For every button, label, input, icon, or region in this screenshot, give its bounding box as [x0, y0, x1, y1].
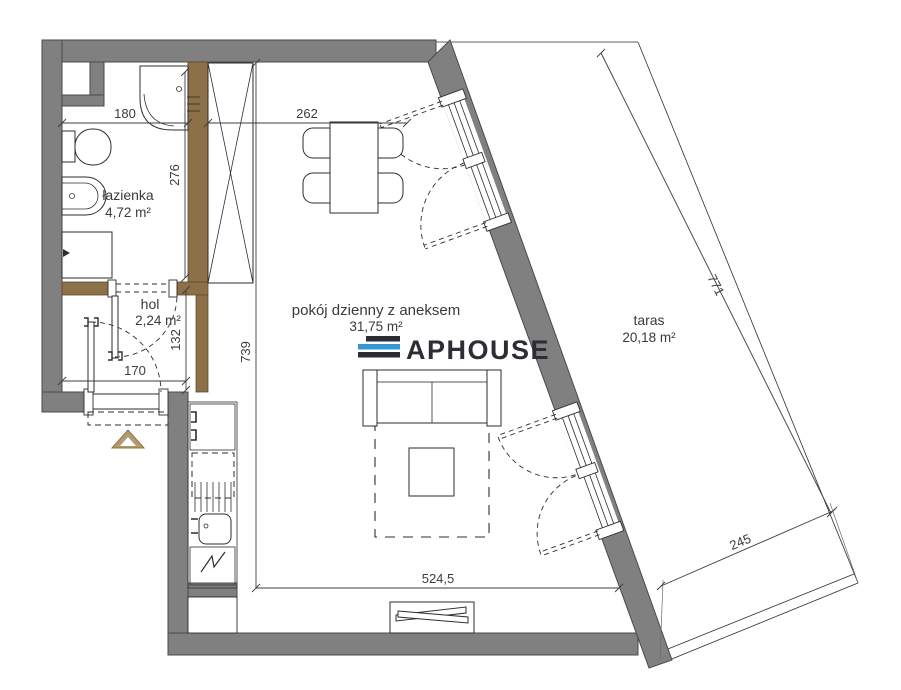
toilet-bowl — [75, 129, 111, 165]
cabinet-handle-icon — [191, 412, 196, 440]
room-area-hol: 2,24 m² — [135, 313, 181, 328]
door1-leaf-b — [425, 226, 487, 249]
entry-door-leaf — [88, 322, 94, 392]
room-area-bathroom: 4,72 m² — [105, 205, 151, 220]
hol-east-wall — [196, 295, 208, 392]
shaft-wall-horizontal — [62, 95, 104, 106]
bathroom-south-wall-right — [173, 282, 208, 295]
dim-245: 245 — [727, 531, 753, 553]
kitchen — [188, 402, 237, 588]
logo-text: APHOUSE — [406, 335, 550, 365]
dim-180: 180 — [114, 106, 136, 121]
dim-276: 276 — [167, 164, 182, 186]
stove — [190, 547, 235, 585]
entry-threshold — [88, 412, 168, 425]
dining-table — [330, 122, 378, 213]
kitchen-cabinet — [190, 404, 235, 450]
door2-leaf-b — [540, 531, 598, 552]
entry-sill-left — [84, 389, 93, 415]
toilet-tank — [62, 131, 75, 162]
kitchen-faucet — [191, 519, 198, 533]
door1-leaf-a — [381, 105, 443, 128]
wall-recess — [188, 597, 237, 633]
entry-wall-left-stub — [42, 392, 88, 412]
bathroom-south-wall-left — [62, 282, 112, 295]
room-area-living: 31,75 m² — [349, 319, 403, 334]
room-label-hol: hol — [141, 296, 160, 312]
door1-leaf-a — [380, 101, 442, 124]
washing-machine — [62, 232, 112, 278]
floor-plan-svg: 180 262 276 132 170 739 524,5 771 245 ła… — [0, 0, 901, 690]
dim-524-5: 524,5 — [422, 571, 455, 586]
bath-door-sill-left — [108, 280, 116, 297]
wardrobe — [208, 63, 253, 283]
dim-170: 170 — [124, 363, 146, 378]
door2-leaf-a — [499, 418, 557, 439]
room-label-terrace: taras — [633, 312, 664, 328]
dim-739: 739 — [238, 341, 253, 363]
dim-262: 262 — [296, 106, 318, 121]
bath-door-sill-right — [169, 280, 177, 297]
bathroom-east-wall — [188, 62, 208, 282]
sofa-armrest-left — [363, 370, 377, 426]
logo-stripe-dark-icon — [366, 336, 400, 342]
door2-leaf-b — [541, 535, 599, 556]
room-area-terrace: 20,18 m² — [622, 330, 676, 345]
bathroom-door-leaf — [112, 296, 118, 358]
floor-plan-page: 180 262 276 132 170 739 524,5 771 245 ła… — [0, 0, 901, 690]
aphouse-logo: APHOUSE — [358, 335, 550, 365]
coffee-table — [409, 448, 454, 496]
terrace-bottom-edge-outer — [662, 583, 858, 663]
bottom-wall — [168, 633, 638, 655]
electric-stove-icon — [201, 552, 225, 572]
dim-771: 771 — [704, 272, 727, 298]
dim-132: 132 — [168, 329, 183, 351]
door2-leaf-a — [498, 414, 556, 435]
top-wall — [42, 40, 436, 62]
shaft-wall-vertical — [90, 62, 104, 95]
room-label-living: pokój dzienny z aneksem — [292, 302, 460, 319]
left-wall — [42, 40, 62, 412]
room-label-bathroom: łazienka — [102, 187, 154, 203]
logo-stripe-blue-icon — [358, 344, 400, 350]
entry-door-swing — [91, 322, 161, 392]
dining-set — [303, 122, 403, 213]
dish-drainer — [195, 482, 231, 512]
logo-stripe-dark-icon — [358, 352, 400, 358]
kitchen-west-wall — [168, 392, 188, 655]
kitchen-sink — [199, 514, 231, 544]
sofa-armrest-right — [487, 370, 501, 426]
living-furniture — [363, 370, 501, 633]
entry-sill-right — [159, 389, 168, 415]
door1-leaf-b — [424, 223, 486, 246]
terrace-bottom-edge-inner — [658, 574, 854, 653]
